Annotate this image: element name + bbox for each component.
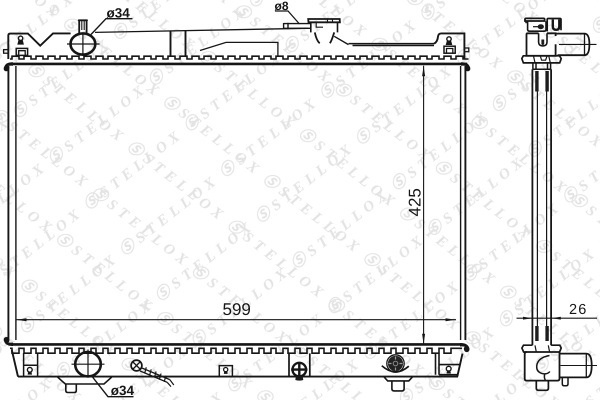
svg-text:ø34: ø34	[111, 383, 135, 398]
svg-text:425: 425	[406, 188, 425, 216]
svg-text:26: 26	[569, 302, 588, 318]
svg-text:599: 599	[223, 300, 251, 319]
